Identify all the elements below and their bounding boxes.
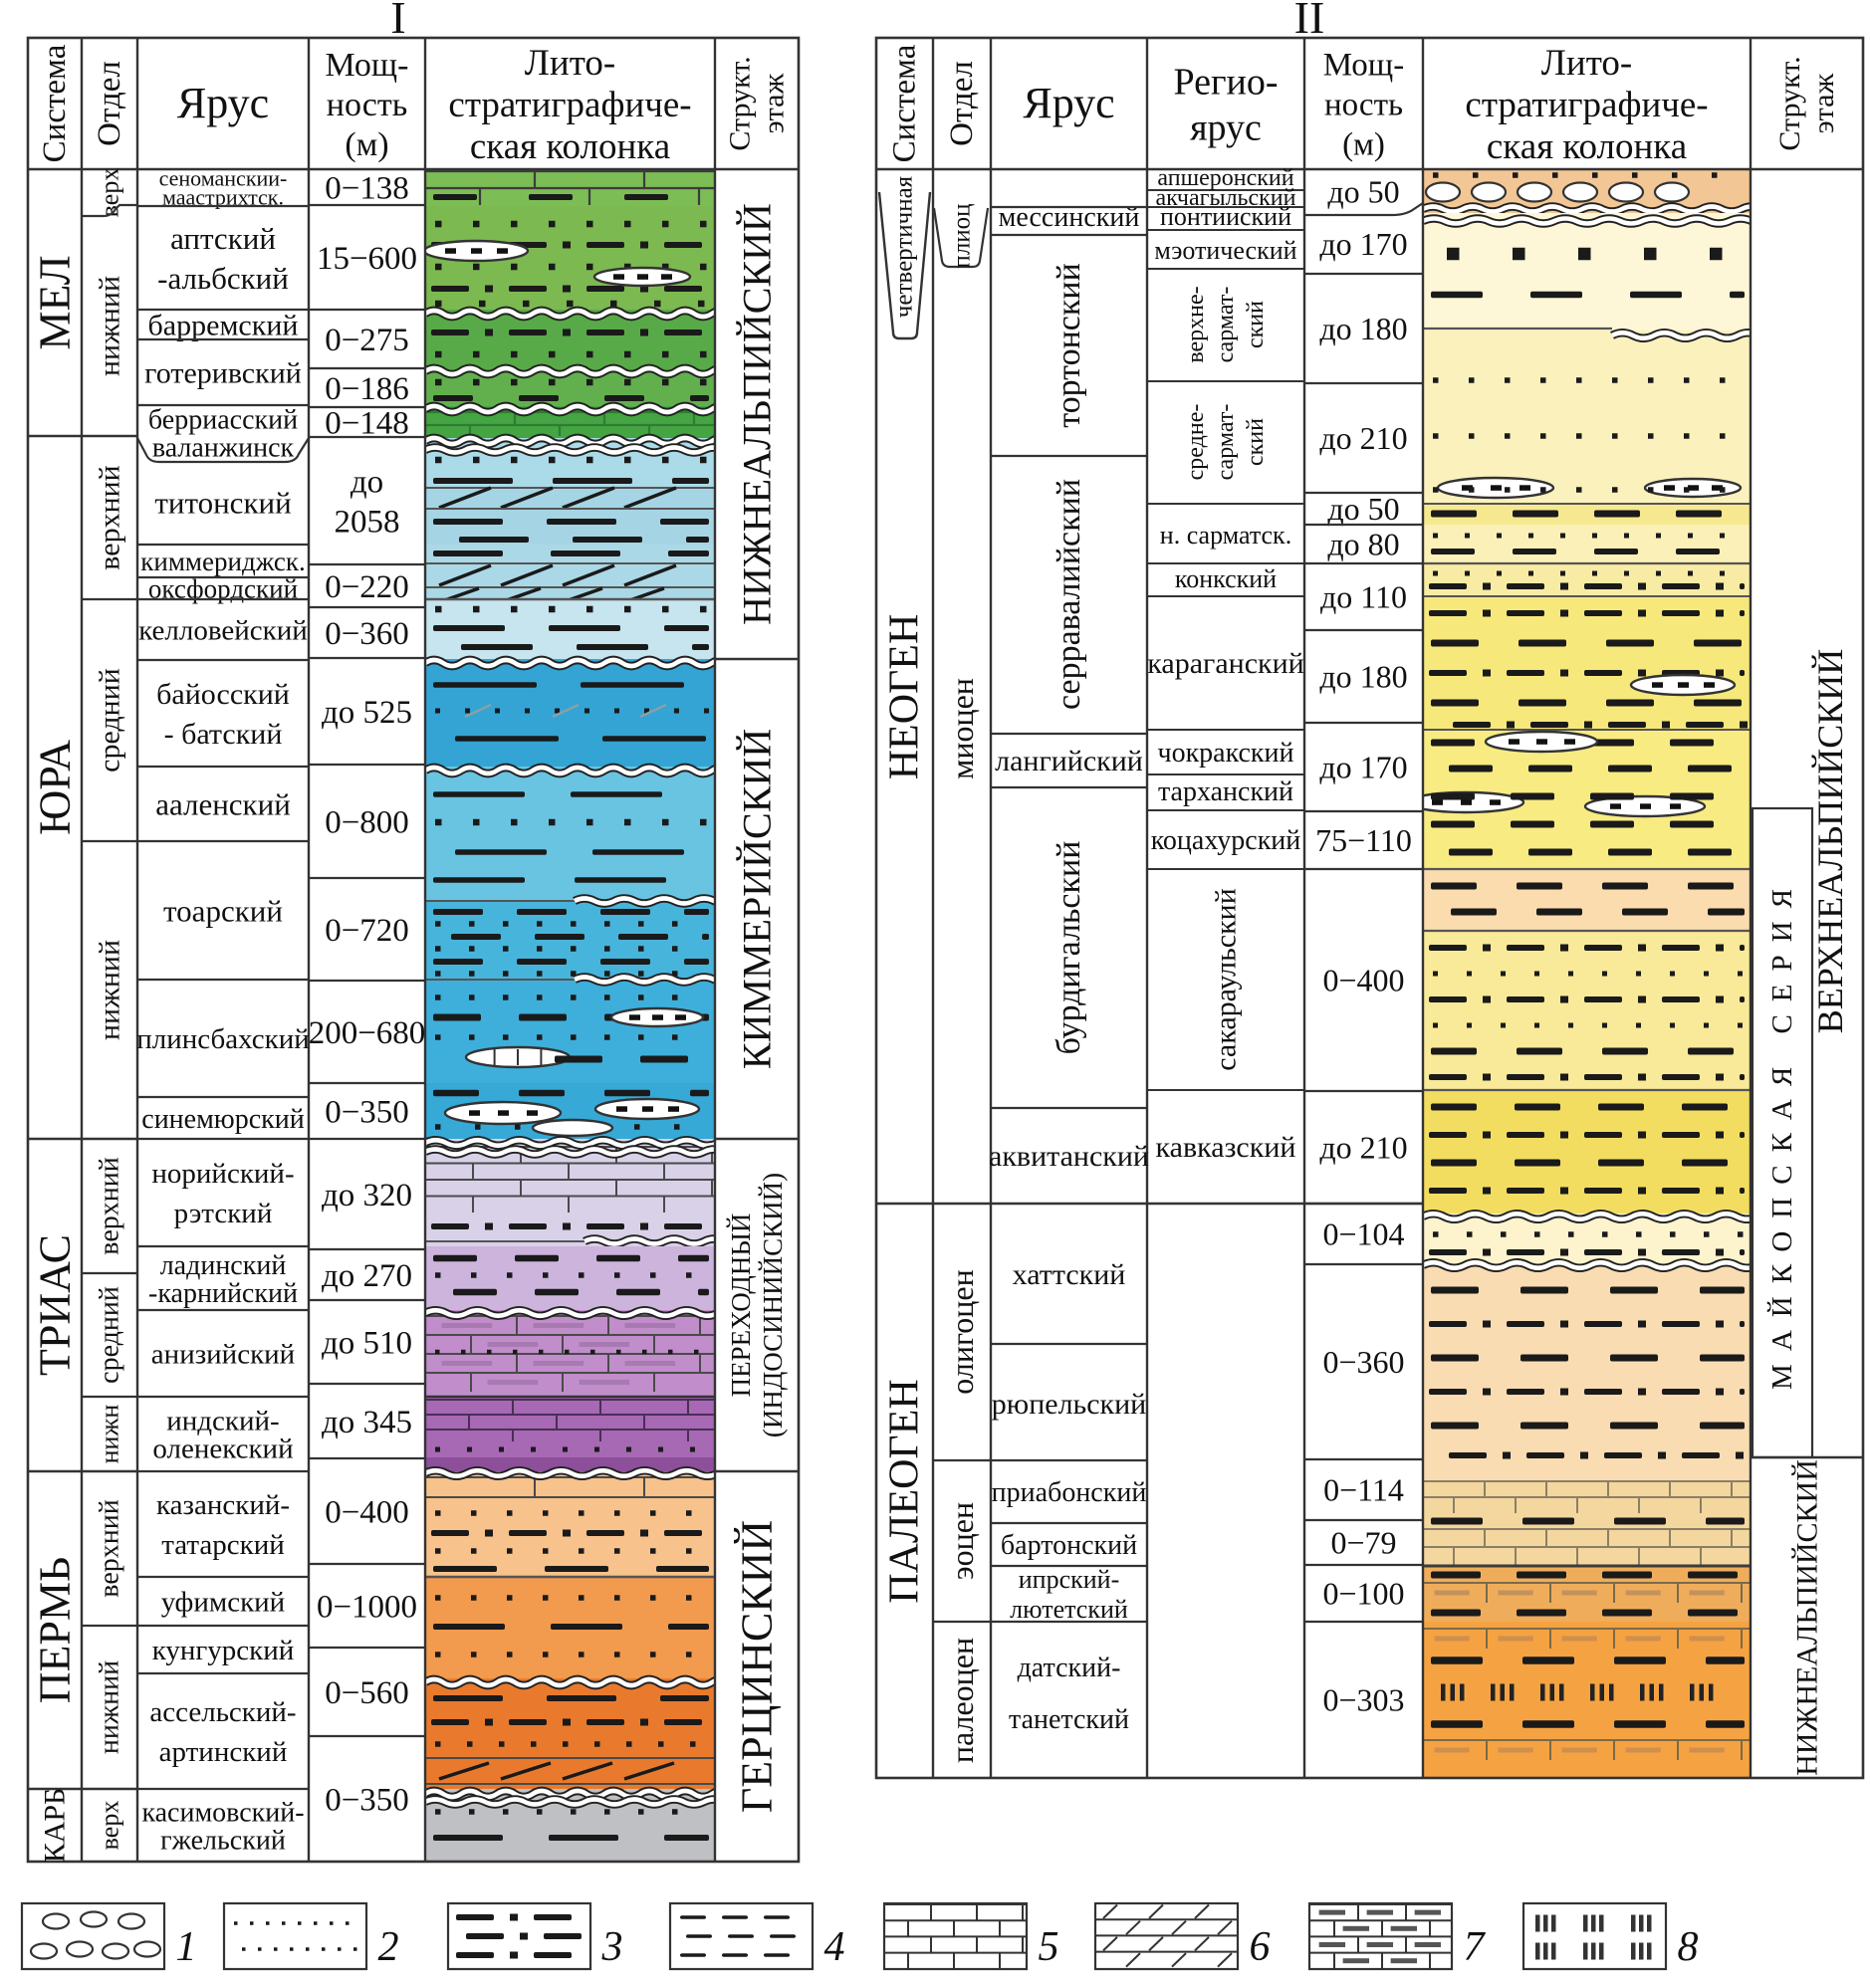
svg-text:75−110: 75−110 <box>1315 822 1412 858</box>
svg-text:чокракский: чокракский <box>1157 738 1293 769</box>
svg-text:уфимский: уфимский <box>161 1587 285 1619</box>
svg-text:до 210: до 210 <box>1319 420 1407 456</box>
svg-text:ипрский-: ипрский- <box>1019 1565 1120 1594</box>
svg-text:ладинский: ладинский <box>160 1250 287 1281</box>
svg-text:сармат-: сармат- <box>1213 404 1239 481</box>
svg-text:0−360: 0−360 <box>1322 1344 1404 1380</box>
svg-text:- батский: - батский <box>164 718 283 751</box>
svg-text:ТРИАС: ТРИАС <box>31 1234 80 1376</box>
svg-text:норийский-: норийский- <box>151 1158 294 1190</box>
svg-text:серравалийский: серравалийский <box>1051 479 1087 710</box>
svg-text:барремский: барремский <box>148 310 299 342</box>
svg-text:0−79: 0−79 <box>1330 1525 1396 1561</box>
svg-text:датский-: датский- <box>1018 1653 1121 1683</box>
svg-text:4: 4 <box>824 1924 845 1970</box>
svg-text:берриасский: берриасский <box>148 404 298 435</box>
svg-text:0−138: 0−138 <box>325 171 409 207</box>
svg-text:0−100: 0−100 <box>1322 1576 1404 1612</box>
svg-text:татарский: татарский <box>161 1529 285 1561</box>
svg-text:до 50: до 50 <box>1327 174 1399 210</box>
svg-text:2058: 2058 <box>335 505 400 541</box>
svg-text:2: 2 <box>378 1924 399 1970</box>
svg-text:аптский: аптский <box>170 221 276 256</box>
svg-text:мэотический: мэотический <box>1154 236 1296 265</box>
svg-text:гжельский: гжельский <box>160 1825 286 1856</box>
svg-text:Ярус: Ярус <box>177 79 269 127</box>
svg-text:рэтский: рэтский <box>174 1198 273 1229</box>
svg-text:приабонский: приабонский <box>992 1477 1147 1508</box>
svg-text:0−1000: 0−1000 <box>317 1590 417 1626</box>
svg-text:Мощ-: Мощ- <box>326 47 409 84</box>
svg-text:плинсбахский: плинсбахский <box>136 1023 310 1055</box>
svg-text:1: 1 <box>176 1924 197 1970</box>
svg-text:ская колонка: ская колонка <box>470 126 670 167</box>
svg-text:0−350: 0−350 <box>325 1783 409 1819</box>
svg-text:стратиграфиче-: стратиграфиче- <box>448 85 691 125</box>
svg-text:понтииский: понтииский <box>1160 202 1291 231</box>
svg-text:0−720: 0−720 <box>325 913 409 949</box>
svg-text:Отдел: Отдел <box>92 61 127 146</box>
svg-text:ность: ность <box>1324 88 1403 123</box>
svg-text:до 50: до 50 <box>1327 491 1399 527</box>
svg-text:синемюрский: синемюрский <box>141 1104 304 1135</box>
svg-text:касимовский-: касимовский- <box>141 1797 304 1828</box>
svg-text:0−400: 0−400 <box>1322 963 1404 998</box>
svg-text:(ИНДОСИНИЙСКИЙ): (ИНДОСИНИЙСКИЙ) <box>758 1173 788 1437</box>
svg-text:артинский: артинский <box>159 1736 288 1768</box>
svg-text:бурдигальский: бурдигальский <box>1051 841 1087 1055</box>
svg-text:0−186: 0−186 <box>325 371 409 407</box>
svg-text:Мощ-: Мощ- <box>1323 48 1404 84</box>
svg-text:средне-: средне- <box>1183 404 1209 481</box>
svg-text:0−360: 0−360 <box>325 616 409 652</box>
svg-text:валанжинск: валанжинск <box>152 432 295 463</box>
svg-text:титонский: титонский <box>154 485 291 520</box>
svg-text:этаж: этаж <box>1807 74 1840 134</box>
svg-text:3: 3 <box>601 1924 623 1970</box>
svg-text:ЮРА: ЮРА <box>31 740 80 835</box>
svg-text:сармат-: сармат- <box>1213 287 1239 363</box>
svg-text:верх: верх <box>96 1801 124 1851</box>
svg-text:миоцен: миоцен <box>944 678 980 779</box>
svg-text:тарханский: тарханский <box>1158 776 1293 807</box>
svg-text:НИЖНЕАЛЬПИЙСКИЙ: НИЖНЕАЛЬПИЙСКИЙ <box>735 203 780 625</box>
svg-text:II: II <box>1294 0 1325 43</box>
svg-text:Регио-: Регио- <box>1173 61 1278 103</box>
svg-text:танетский: танетский <box>1009 1704 1129 1735</box>
svg-text:средний: средний <box>95 1286 125 1384</box>
svg-text:6: 6 <box>1250 1924 1271 1970</box>
svg-text:байосский: байосский <box>156 678 290 711</box>
svg-text:КИММЕРИЙСКИЙ: КИММЕРИЙСКИЙ <box>735 729 780 1069</box>
svg-text:коцахурский: коцахурский <box>1151 825 1301 856</box>
svg-text:верх: верх <box>96 168 124 218</box>
svg-text:-альбский: -альбский <box>157 261 289 296</box>
svg-text:ский: ский <box>1243 418 1269 466</box>
svg-text:караганский: караганский <box>1147 647 1303 680</box>
svg-text:ПЕРМЬ: ПЕРМЬ <box>31 1557 80 1704</box>
svg-text:ярус: ярус <box>1190 107 1262 148</box>
svg-text:кавказский: кавказский <box>1156 1131 1296 1164</box>
svg-text:ский: ский <box>1243 301 1269 348</box>
svg-text:киммериджск.: киммериджск. <box>140 547 305 576</box>
svg-text:ааленский: ааленский <box>155 786 291 821</box>
svg-text:четвертичная: четвертичная <box>891 175 918 318</box>
svg-text:лютетский: лютетский <box>1010 1595 1128 1624</box>
svg-text:хаттский: хаттский <box>1013 1258 1126 1291</box>
svg-text:ПЕРЕХОДНЫЙ: ПЕРЕХОДНЫЙ <box>726 1214 756 1398</box>
svg-text:Система: Система <box>887 44 923 162</box>
svg-text:Отдел: Отдел <box>944 61 980 146</box>
svg-text:тоарский: тоарский <box>163 893 283 928</box>
svg-text:Система: Система <box>37 44 73 162</box>
svg-text:оленекский: оленекский <box>152 1434 293 1465</box>
svg-text:до 180: до 180 <box>1319 659 1407 695</box>
svg-text:Лито-: Лито- <box>1541 43 1632 84</box>
svg-text:нижний: нижний <box>94 276 126 376</box>
svg-text:аквитанский: аквитанский <box>989 1140 1149 1173</box>
svg-text:нижний: нижний <box>95 1660 125 1754</box>
svg-text:верхний: верхний <box>95 1499 125 1597</box>
svg-text:верхний: верхний <box>94 465 126 569</box>
svg-text:ГЕРЦИНСКИЙ: ГЕРЦИНСКИЙ <box>733 1520 782 1813</box>
svg-text:-карнийский: -карнийский <box>148 1278 298 1309</box>
svg-text:0−104: 0−104 <box>1322 1216 1404 1252</box>
svg-text:0−800: 0−800 <box>325 805 409 841</box>
svg-text:МЕЛ: МЕЛ <box>31 255 80 349</box>
svg-text:рюпельский: рюпельский <box>992 1388 1146 1421</box>
svg-text:кунгурский: кунгурский <box>152 1635 295 1666</box>
svg-text:7: 7 <box>1464 1924 1487 1970</box>
svg-text:Лито-: Лито- <box>525 43 615 84</box>
svg-text:средний: средний <box>94 668 126 773</box>
svg-text:олигоцен: олигоцен <box>944 1269 980 1394</box>
svg-text:плиоц: плиоц <box>949 203 976 268</box>
svg-text:до 210: до 210 <box>1319 1130 1407 1166</box>
svg-text:0−400: 0−400 <box>325 1495 409 1531</box>
svg-text:до 320: до 320 <box>322 1178 412 1214</box>
svg-text:ВЕРХНЕАЛЬПИЙСКИЙ: ВЕРХНЕАЛЬПИЙСКИЙ <box>1810 649 1850 1034</box>
svg-text:МАЙКОПСКАЯ СЕРИЯ: МАЙКОПСКАЯ СЕРИЯ <box>1766 876 1798 1390</box>
svg-text:(м): (м) <box>1342 127 1385 163</box>
svg-text:анизийский: анизийский <box>151 1339 295 1371</box>
svg-text:этаж: этаж <box>758 74 791 134</box>
svg-text:0−114: 0−114 <box>1323 1472 1404 1508</box>
svg-text:Ярус: Ярус <box>1023 79 1114 127</box>
svg-text:нижн: нижн <box>96 1405 124 1464</box>
svg-text:15−600: 15−600 <box>317 241 417 277</box>
svg-text:ская колонка: ская колонка <box>1487 126 1687 167</box>
svg-text:до: до <box>351 465 383 501</box>
svg-text:ность: ность <box>327 87 408 123</box>
svg-text:до 170: до 170 <box>1319 226 1407 262</box>
svg-text:конкский: конкский <box>1175 564 1277 593</box>
svg-text:Структ.: Структ. <box>1773 56 1806 150</box>
svg-text:до 180: до 180 <box>1319 311 1407 346</box>
svg-text:до 510: до 510 <box>322 1326 412 1362</box>
svg-text:келловейский: келловейский <box>138 615 308 647</box>
svg-text:8: 8 <box>1678 1924 1699 1970</box>
svg-text:0−560: 0−560 <box>325 1675 409 1711</box>
svg-text:готеривский: готеривский <box>144 357 302 390</box>
svg-text:нижний: нижний <box>94 940 126 1040</box>
svg-text:до 525: до 525 <box>322 695 412 731</box>
svg-text:тортонский: тортонский <box>1051 263 1087 428</box>
svg-text:до 345: до 345 <box>322 1405 412 1440</box>
svg-text:0−275: 0−275 <box>325 323 409 358</box>
svg-text:НИЖНЕАЛЬПИЙСКИЙ: НИЖНЕАЛЬПИЙСКИЙ <box>1791 1459 1824 1776</box>
svg-text:Структ.: Структ. <box>724 56 757 150</box>
svg-text:сакараульский: сакараульский <box>1210 888 1243 1071</box>
svg-text:верхне-: верхне- <box>1183 286 1209 362</box>
svg-text:ПАЛЕОГЕН: ПАЛЕОГЕН <box>882 1379 928 1603</box>
svg-text:(м): (м) <box>345 126 388 163</box>
svg-text:верхний: верхний <box>95 1157 125 1254</box>
svg-text:НЕОГЕН: НЕОГЕН <box>882 614 928 780</box>
svg-text:до 270: до 270 <box>322 1258 412 1294</box>
svg-text:5: 5 <box>1039 1924 1059 1970</box>
svg-text:н. сарматск.: н. сарматск. <box>1160 521 1291 550</box>
svg-text:до 110: до 110 <box>1320 579 1407 615</box>
svg-text:стратиграфиче-: стратиграфиче- <box>1465 85 1708 125</box>
svg-text:до 170: до 170 <box>1319 750 1407 785</box>
svg-text:ассельский-: ассельский- <box>149 1696 296 1728</box>
svg-text:казанский-: казанский- <box>156 1489 290 1521</box>
svg-text:0−350: 0−350 <box>325 1095 409 1131</box>
svg-text:эоцен: эоцен <box>944 1502 980 1580</box>
svg-text:КАРБ: КАРБ <box>39 1788 72 1864</box>
svg-text:0−303: 0−303 <box>1322 1682 1404 1718</box>
svg-text:200−680: 200−680 <box>309 1015 426 1051</box>
svg-text:I: I <box>390 0 405 43</box>
svg-text:палеоцен: палеоцен <box>944 1638 980 1763</box>
svg-text:до 80: до 80 <box>1327 527 1399 562</box>
svg-text:бартонский: бартонский <box>1001 1530 1137 1561</box>
svg-text:0−220: 0−220 <box>325 569 409 605</box>
svg-text:лангийский: лангийский <box>995 745 1143 777</box>
